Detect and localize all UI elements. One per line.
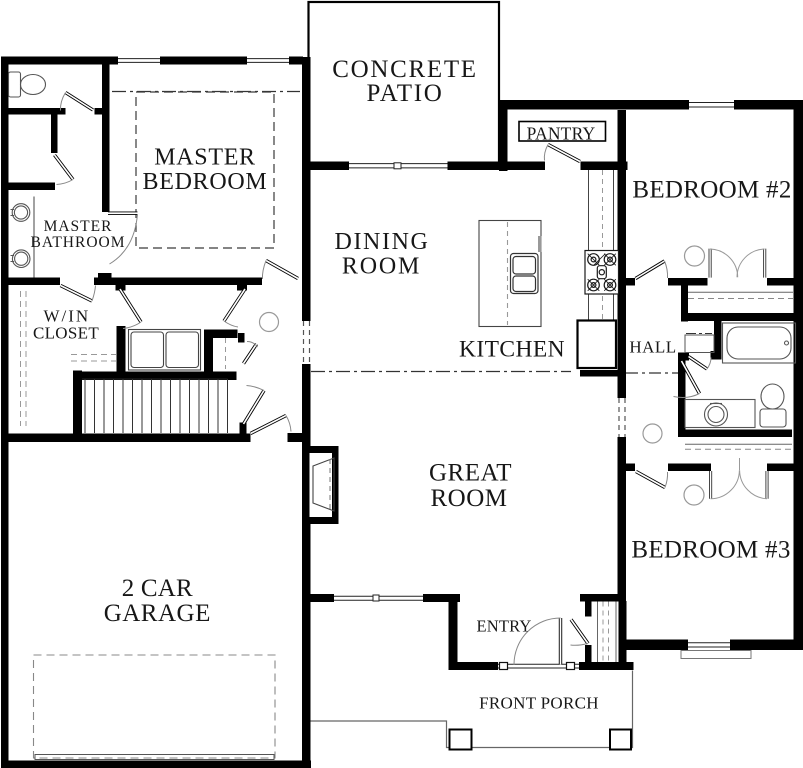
- svg-text:BEDROOM: BEDROOM: [143, 169, 268, 195]
- svg-text:KITCHEN: KITCHEN: [459, 337, 565, 363]
- svg-text:PANTRY: PANTRY: [527, 124, 596, 144]
- svg-text:BEDROOM #2: BEDROOM #2: [632, 177, 791, 204]
- svg-text:MASTER: MASTER: [154, 145, 256, 171]
- svg-text:CLOSET: CLOSET: [33, 323, 99, 342]
- svg-text:GARAGE: GARAGE: [104, 600, 211, 627]
- svg-text:CONCRETE: CONCRETE: [332, 56, 478, 83]
- svg-text:HALL: HALL: [629, 338, 676, 357]
- svg-text:FRONT PORCH: FRONT PORCH: [479, 694, 599, 713]
- svg-text:ROOM: ROOM: [342, 254, 421, 280]
- svg-text:BEDROOM #3: BEDROOM #3: [631, 537, 790, 564]
- svg-text:PATIO: PATIO: [366, 80, 443, 107]
- svg-text:BATHROOM: BATHROOM: [31, 234, 126, 251]
- svg-text:MASTER: MASTER: [44, 218, 113, 235]
- svg-text:ENTRY: ENTRY: [476, 617, 531, 636]
- svg-text:DINING: DINING: [335, 229, 430, 255]
- svg-text:2 CAR: 2 CAR: [122, 575, 193, 602]
- svg-text:GREAT: GREAT: [429, 460, 512, 487]
- svg-text:ROOM: ROOM: [430, 485, 507, 512]
